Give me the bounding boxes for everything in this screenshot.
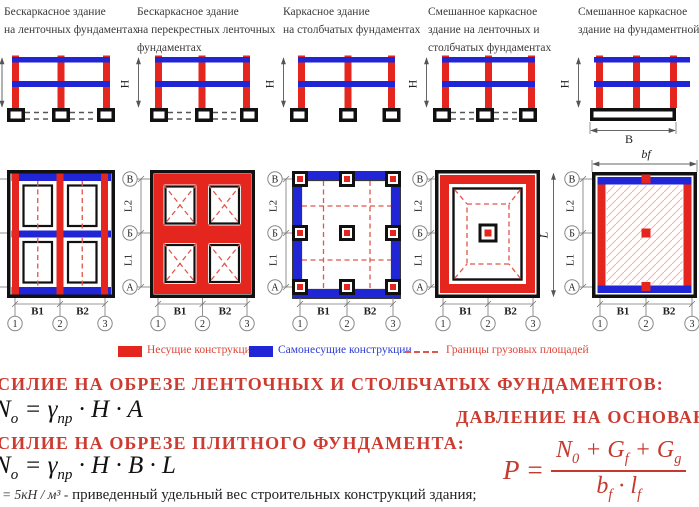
sub-pr: пр xyxy=(57,467,72,483)
fraction-numerator: N0 + Gf + Gg xyxy=(551,437,686,472)
grid-col-3: 3 xyxy=(391,319,396,330)
grid-row-a: А xyxy=(416,283,424,294)
dim-label-l: L xyxy=(537,231,551,239)
legend-bearing-label: Несущие конструкции xyxy=(147,344,257,356)
grid-col-2: 2 xyxy=(58,319,63,330)
plan-strip: B1 B2 1 2 3 xyxy=(0,172,113,331)
legend: Несущие конструкции Самонесущие конструк… xyxy=(0,344,699,360)
title-slab-load: СИЛИЕ НА ОБРЕЗЕ ПЛИТНОГО ФУНДАМЕНТА: xyxy=(0,433,465,454)
dim-label-b1: B1 xyxy=(617,306,630,318)
slide: Бескаркасное здание на ленточных фундаме… xyxy=(0,0,699,507)
grid-col-3: 3 xyxy=(531,319,536,330)
grid-row-a: А xyxy=(271,283,279,294)
diagram-canvas: H H H xyxy=(0,0,699,507)
grid-row-b: Б xyxy=(417,229,423,240)
dim-label-l1: L1 xyxy=(565,254,577,266)
title-strip-load: СИЛИЕ НА ОБРЕЗЕ ЛЕНТОЧНЫХ И СТОЛБЧАТЫХ Ф… xyxy=(0,374,664,395)
dim-label-l2: L2 xyxy=(565,200,577,212)
formula-tail: · H · A xyxy=(72,396,142,423)
legend-bearing-swatch xyxy=(118,346,142,357)
dim-label-b2: B2 xyxy=(504,306,517,318)
equals: = xyxy=(18,452,47,479)
formula-pressure: P = N0 + Gf + Gg bf · lf xyxy=(503,437,686,504)
plan-columnar: В Б А L2 L1 xyxy=(268,172,401,331)
elevation-strip xyxy=(2,56,113,121)
elevation-mixed: H xyxy=(406,56,536,121)
grid-row-v: В xyxy=(569,175,576,186)
grid-col-1: 1 xyxy=(441,319,446,330)
dim-label-l1: L1 xyxy=(268,254,280,266)
legend-boundary-label: Границы грузовых площадей xyxy=(446,344,589,356)
legend-selfbearing-swatch xyxy=(249,346,273,357)
elevation-slab: H B xyxy=(558,56,691,147)
formula-tail: · H · B · L xyxy=(72,452,175,479)
gamma-note-text: приведенный удельный вес строительных ко… xyxy=(72,487,476,503)
grid-col-2: 2 xyxy=(644,319,649,330)
elevation-cross-strip: H xyxy=(118,56,257,121)
dim-label-b2: B2 xyxy=(364,306,377,318)
dim-label-b2: B2 xyxy=(219,306,232,318)
grid-col-2: 2 xyxy=(486,319,491,330)
grid-col-1: 1 xyxy=(298,319,303,330)
grid-row-b: Б xyxy=(569,229,575,240)
grid-col-3: 3 xyxy=(245,319,250,330)
grid-col-1: 1 xyxy=(13,319,18,330)
dim-label-bf: bf xyxy=(641,147,652,161)
dim-label-b1: B1 xyxy=(174,306,187,318)
dim-label-b: B xyxy=(625,132,633,146)
dim-label-l2: L2 xyxy=(123,200,135,212)
legend-selfbearing-label: Самонесущие конструкции xyxy=(278,344,412,356)
title-pressure: ДАВЛЕНИЕ НА ОСНОВАНИ xyxy=(456,407,699,428)
dim-label-l2: L2 xyxy=(268,200,280,212)
dim-label-b2: B2 xyxy=(663,306,676,318)
dim-label-b2: B2 xyxy=(76,306,89,318)
legend-boundary-dash xyxy=(405,351,438,353)
grid-row-b: Б xyxy=(127,229,133,240)
grid-col-3: 3 xyxy=(103,319,108,330)
sub-pr: пр xyxy=(57,411,72,427)
formula-strip-load: No = γпр · H · A xyxy=(0,396,143,428)
formula-slab-load: No = γпр · H · B · L xyxy=(0,452,176,484)
grid-col-1: 1 xyxy=(598,319,603,330)
elevation-columnar: H xyxy=(263,56,399,121)
dim-label-l1: L1 xyxy=(123,254,135,266)
grid-row-v: В xyxy=(417,175,424,186)
plan-slab: L bf В Б А L2 L1 xyxy=(537,147,699,331)
grid-row-b: Б xyxy=(272,229,278,240)
grid-row-v: В xyxy=(272,175,279,186)
grid-col-1: 1 xyxy=(156,319,161,330)
grid-col-3: 3 xyxy=(690,319,695,330)
dim-label-h: H xyxy=(118,79,132,88)
var-n: N xyxy=(0,396,11,423)
grid-col-2: 2 xyxy=(345,319,350,330)
var-n: N xyxy=(0,452,11,479)
var-p: P = xyxy=(503,455,544,486)
grid-row-v: В xyxy=(127,175,134,186)
gamma-note: = 5кН / м³ - приведенный удельный вес ст… xyxy=(2,487,477,504)
grid-col-2: 2 xyxy=(200,319,205,330)
grid-row-a: А xyxy=(568,283,576,294)
fraction-denominator: bf · lf xyxy=(551,472,686,504)
plan-mixed: В Б А L2 L1 B1 B2 xyxy=(413,172,541,331)
grid-row-a: А xyxy=(126,283,134,294)
dim-label-h: H xyxy=(406,79,420,88)
dim-label-b1: B1 xyxy=(459,306,472,318)
dim-label-l1: L1 xyxy=(413,254,425,266)
plan-cross-strip: В Б А L2 L1 xyxy=(123,172,255,331)
fraction: N0 + Gf + Gg bf · lf xyxy=(551,437,686,504)
dim-label-b1: B1 xyxy=(317,306,330,318)
dim-label-h: H xyxy=(263,79,277,88)
equals: = xyxy=(18,396,47,423)
var-gamma: γ xyxy=(48,452,58,479)
dim-label-h: H xyxy=(558,79,572,88)
var-gamma: γ xyxy=(48,396,58,423)
dim-label-b1: B1 xyxy=(31,306,44,318)
dim-label-l2: L2 xyxy=(413,200,425,212)
gamma-note-math: = 5кН / м³ - xyxy=(2,487,68,502)
